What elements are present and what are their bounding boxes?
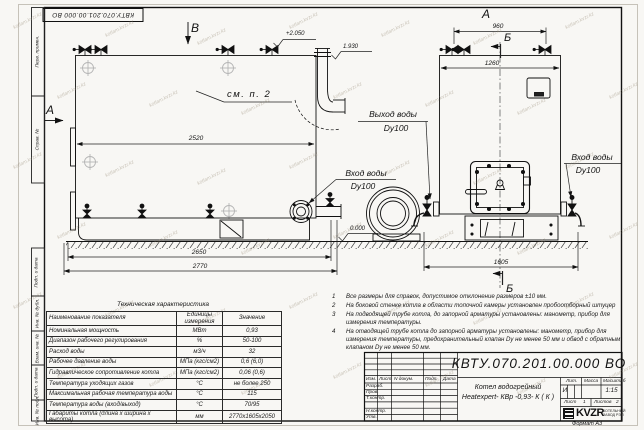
table-row: Максимальная рабочая температура воды°С1… (47, 389, 282, 400)
view-label-a-left: А (46, 104, 54, 116)
margin-cell-sprav-no: Справ. № (31, 96, 44, 183)
tech-table-title: Техническая характеристика (117, 302, 209, 309)
furnace-door (466, 162, 531, 214)
tech-table: Наименование показателя Единицы измерени… (46, 311, 282, 424)
drawing-page: kotlam.kvzr.kzkotlam.kvzr.kzkotlam.kvzr.… (0, 0, 644, 430)
front-base (465, 216, 558, 240)
doc-number: КВТУ.070.201.00.000 ВО (452, 357, 626, 371)
elevation-pipe: 1.930 (343, 44, 358, 50)
callout-water-inlet-right: Вход воды (571, 153, 612, 162)
flue-elbow-pipe (295, 49, 345, 130)
kvzr-logo-subtext: КОТЕЛЬНЫЙ ЗАВОД РЭП (603, 409, 626, 418)
valve-icon (89, 46, 107, 56)
elevation-top: +2.050 (286, 31, 305, 37)
list-item: 2На боковой стенке котла в области топоч… (332, 302, 624, 310)
list-item: 1Все размеры для справок, допустимое отк… (332, 293, 624, 301)
table-row: Номинальная мощностьМВт0,93 (47, 326, 282, 337)
tb-sheets-value: 2 (616, 400, 619, 405)
door-handle (466, 190, 487, 195)
tech-col-units: Единицы измерения (177, 312, 223, 326)
list-item: 4На отводящей трубе котла до запорной ар… (332, 328, 624, 352)
dim-2520: 2520 (189, 136, 203, 143)
tb-col-data: Дата (443, 377, 456, 382)
callout-water-inlet-right-dy: Dy100 (576, 166, 601, 175)
dim-2650: 2650 (192, 250, 206, 257)
format-label: Формат А3 (572, 422, 602, 428)
tech-col-value: Значение (223, 312, 282, 326)
tb-prov: Пров. (366, 390, 379, 395)
tb-tkontr: Т.контр. (366, 396, 385, 401)
tb-razrab: Разраб. (366, 384, 383, 389)
valve-icon (260, 46, 278, 56)
table-row: Расход водым3/ч32 (47, 347, 282, 358)
elevation-zero: 0.000 (350, 226, 365, 232)
kvzr-logo-icon (563, 408, 574, 419)
callout-water-outlet-dy: Dy100 (384, 124, 409, 133)
tb-col-list: Лист (379, 377, 391, 382)
valve-icon (440, 46, 458, 56)
tb-mass-label: Масса (584, 379, 598, 384)
table-row: Диапазон рабочего регулирования%50-100 (47, 336, 282, 347)
drain-valve-icon (138, 204, 146, 218)
table-row: Рабочее давление водыМПа (кгс/см2)0,6 (6… (47, 357, 282, 368)
notes-list: 1Все размеры для справок, допустимое отк… (332, 293, 624, 353)
locating-cross-icon (80, 60, 237, 219)
outlet-nozzle-left (411, 196, 439, 227)
drawing-title-line1: Котел водогрейный (475, 384, 542, 391)
inlet-nozzle-right (561, 196, 585, 227)
table-row: Габариты котла (длина х ширина х высота)… (47, 410, 282, 424)
tech-col-name: Наименование показателя (47, 312, 177, 326)
tb-col-podp: Подп. (425, 377, 438, 382)
callout-water-inlet-left-dy: Dy100 (351, 182, 376, 191)
elevation-marks (274, 40, 379, 242)
callout-water-inlet-left: Вход воды (345, 169, 386, 178)
drawing-title-line2: Heatexpert- КВр -0,93- К ( К ) (462, 394, 554, 401)
tb-lit-label: Лит. (566, 379, 577, 384)
tech-table-header-row: Наименование показателя Единицы измерени… (47, 312, 282, 326)
tb-col-ndokum: N докум. (394, 377, 413, 382)
tb-sheet-value: 1 (583, 400, 586, 405)
tb-utv: Утв. (366, 415, 377, 420)
valve-icon (216, 46, 234, 56)
table-row: Температура воды (вход/выход)°С70/95 (47, 400, 282, 411)
tb-col-izm: Изм. (366, 377, 376, 382)
callout-water-outlet: Выход воды (369, 110, 417, 119)
table-row: Гидравлическое сопротивление котлаМПа (к… (47, 368, 282, 379)
margin-cell-perv-primen: Перв. примен. (31, 7, 44, 96)
margin-cell-podp-data-1: Подп. и дата (31, 248, 44, 296)
water-inlet-flange (290, 201, 312, 223)
boiler-front-view (411, 42, 585, 288)
dim-1260: 1260 (485, 61, 499, 68)
dim-1605: 1605 (494, 260, 508, 267)
see-note-annotation: см. п. 2 (227, 90, 271, 100)
blower-fan (367, 187, 421, 241)
view-label-a-right: А (482, 8, 490, 20)
dim-2770: 2770 (193, 264, 207, 271)
tb-scale-label: Масштаб (603, 379, 625, 384)
stub-valve-icon (326, 193, 334, 207)
margin-cell-inv-dubl: Инв. № дубл. (31, 296, 44, 331)
drain-valve-icon (206, 204, 214, 218)
tb-lit-value: И (563, 388, 568, 395)
list-item: 3На подводящей трубе котла, до запорной … (332, 311, 624, 327)
section-label-b-top: Б (504, 33, 511, 44)
top-stamp: КВТУ.070.201.00.000 ВО (43, 9, 143, 21)
view-label-b: В (191, 22, 199, 34)
support-base (79, 218, 310, 240)
tb-sheets-label: Листов (594, 400, 611, 405)
table-row: Температура уходящих газов°Сне более 250 (47, 378, 282, 389)
valve-icon (73, 46, 91, 56)
margin-cell-inv-podl: Инв. № подл. (31, 400, 44, 421)
drain-valve-icon (83, 204, 91, 218)
tb-nkontr: Н.контр. (366, 409, 386, 414)
tb-sheet-label: Лист (564, 400, 576, 405)
tb-scale-value: 1:15 (605, 388, 617, 394)
valve-icon (533, 46, 551, 56)
margin-cell-vzam-inv: Взам. инв. № (31, 331, 44, 365)
ground-line (66, 242, 588, 250)
dim-960: 960 (493, 24, 504, 31)
kvzr-logo-text: KVZR (576, 407, 604, 419)
boiler-side-view (71, 46, 346, 241)
